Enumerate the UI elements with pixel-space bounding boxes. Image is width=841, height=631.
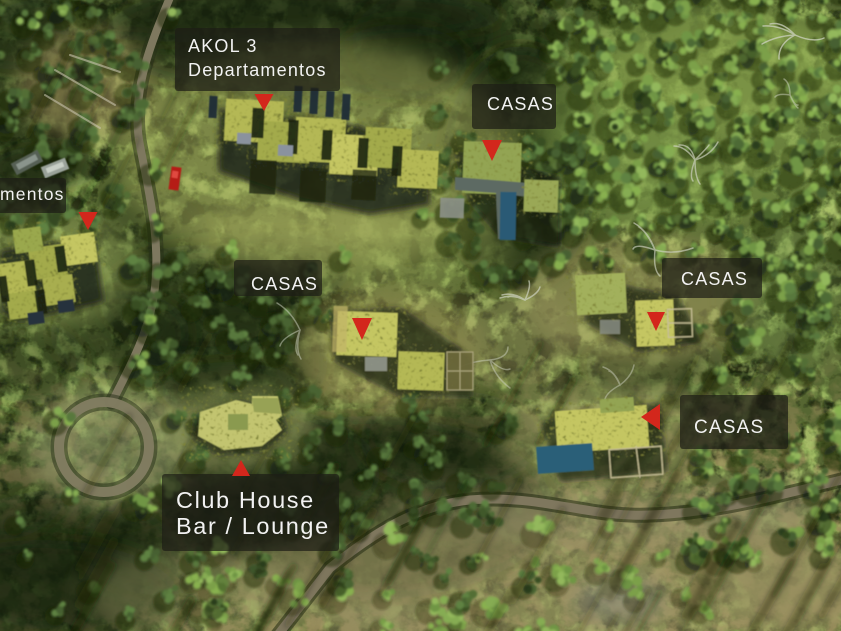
svg-text:CASAS: CASAS <box>487 94 554 114</box>
svg-text:AKOL 3: AKOL 3 <box>188 36 258 56</box>
svg-text:CASAS: CASAS <box>681 269 748 289</box>
svg-text:Club House: Club House <box>176 487 315 513</box>
svg-text:CASAS: CASAS <box>694 417 764 438</box>
svg-text:CASAS: CASAS <box>251 274 318 294</box>
svg-text:mentos: mentos <box>0 184 65 204</box>
svg-text:Departamentos: Departamentos <box>188 60 327 80</box>
svg-text:Bar / Lounge: Bar / Lounge <box>176 513 330 539</box>
